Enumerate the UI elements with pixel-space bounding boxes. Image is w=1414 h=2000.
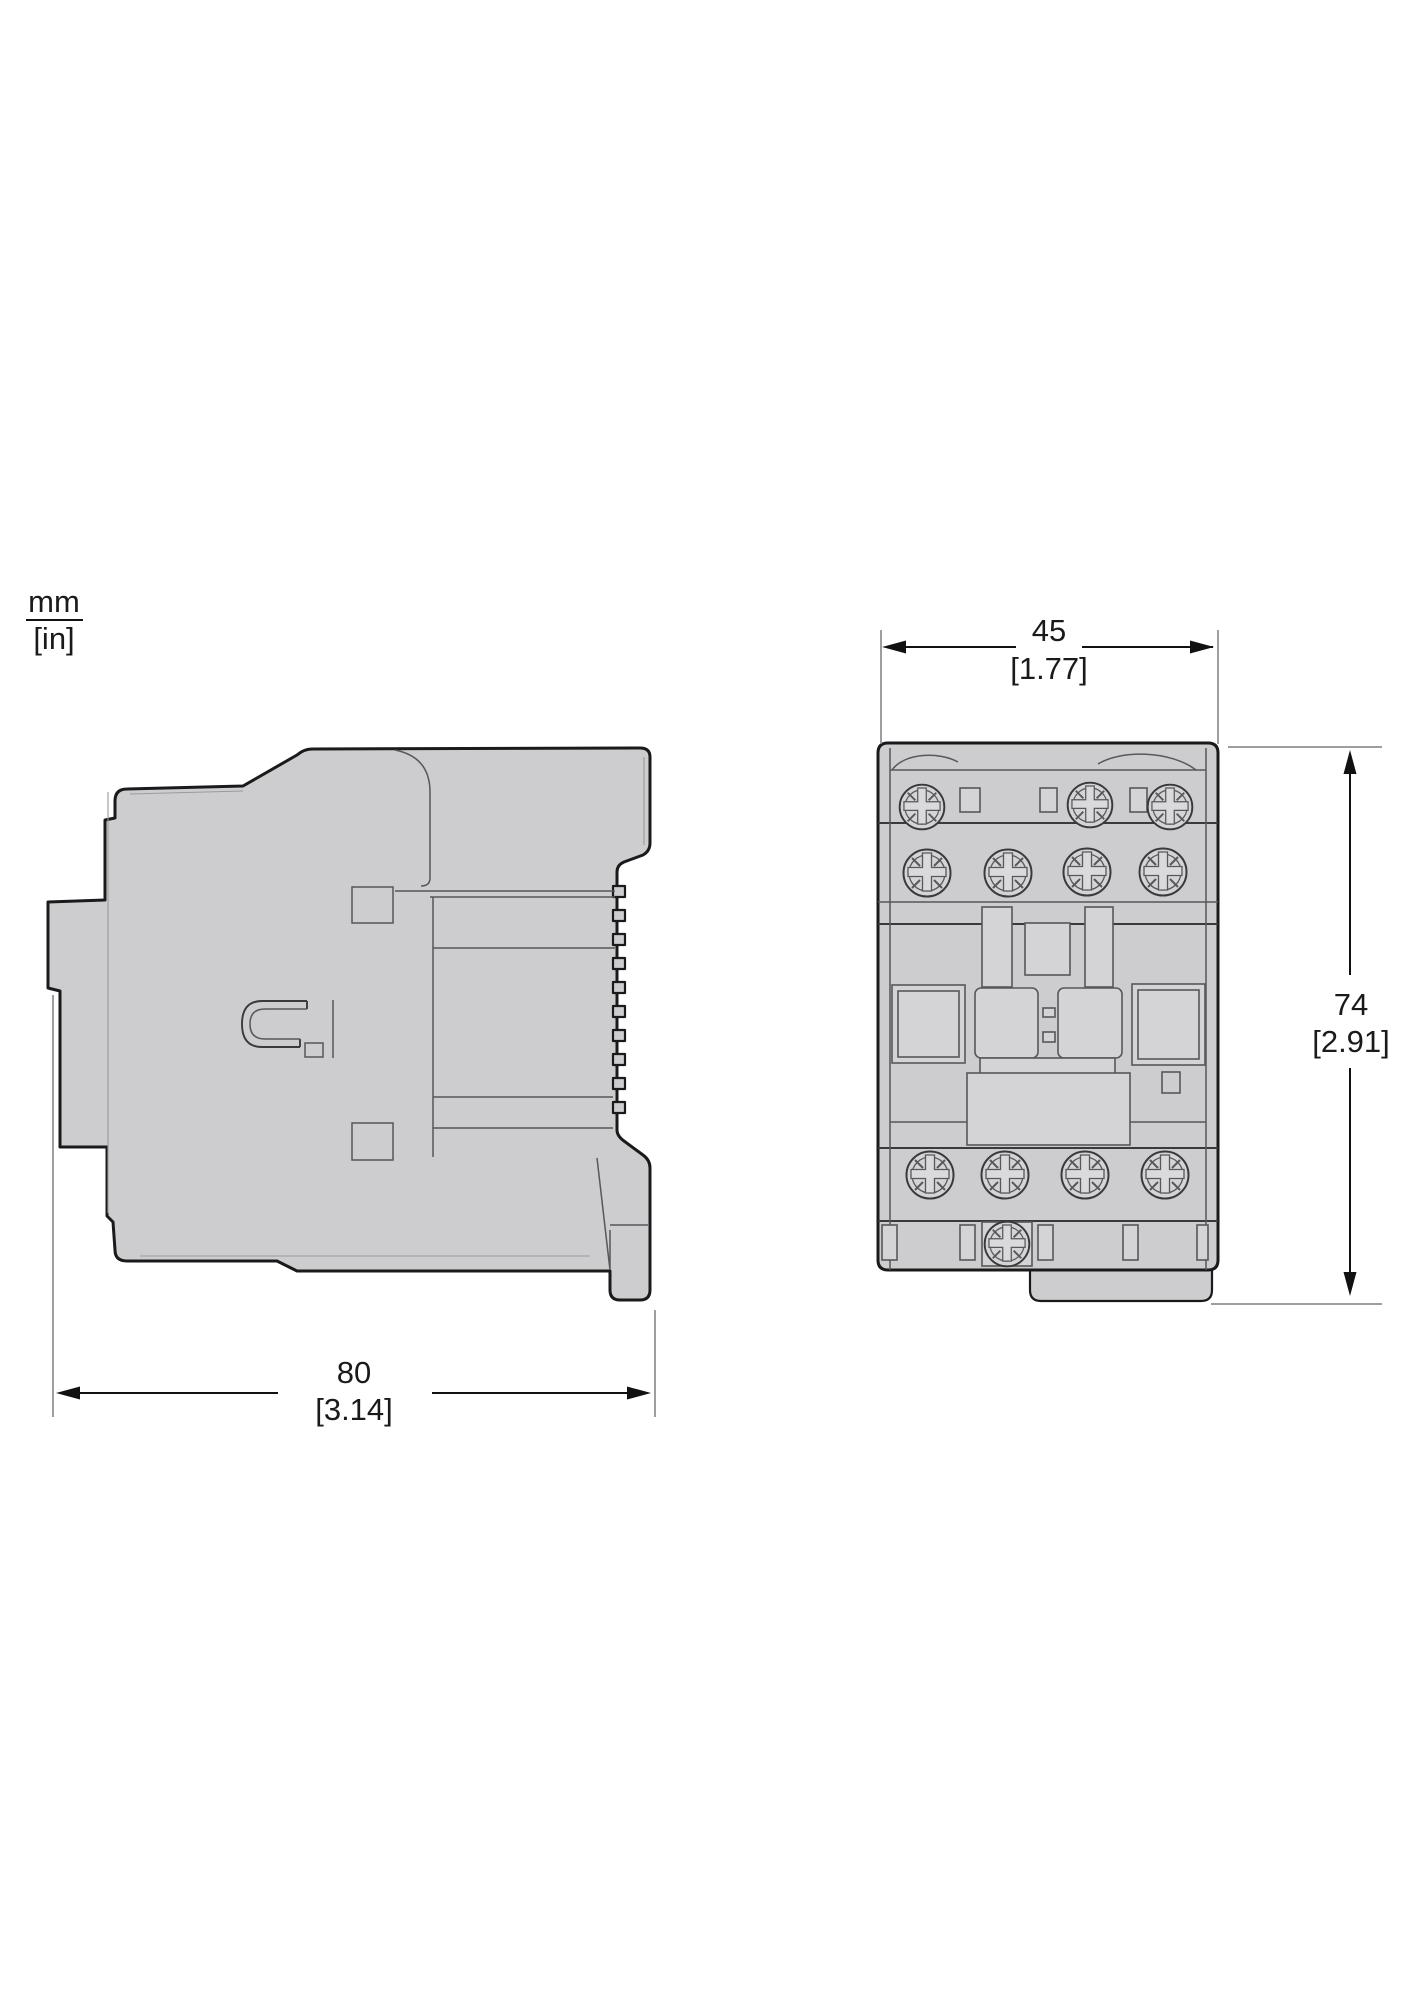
units-mm-label: mm: [28, 584, 80, 619]
screw-icon: [1142, 1152, 1189, 1199]
screw-icon: [904, 850, 951, 897]
arrowhead: [882, 641, 906, 654]
screw-icon: [1140, 849, 1187, 896]
screw-icon: [900, 785, 945, 830]
side-terminal-left: [892, 985, 965, 1063]
screw-icon: [907, 1152, 954, 1199]
screw-icon: [985, 1222, 1030, 1267]
dim-value-mm: 74: [1334, 987, 1368, 1022]
front-foot: [1030, 1270, 1212, 1301]
screw-icon: [1068, 783, 1113, 828]
screw-icon: [985, 850, 1032, 897]
contact-carrier-left: [975, 988, 1038, 1058]
accessory-post: [1085, 907, 1113, 987]
bottom-tab: [1197, 1225, 1208, 1260]
screw-icon: [1062, 1152, 1109, 1199]
dimension-front-height: 74 [2.91]: [1211, 747, 1390, 1304]
carrier-tab: [1043, 1008, 1055, 1017]
screw-icon: [982, 1152, 1029, 1199]
units-label: mm [in]: [26, 584, 83, 656]
side-view: [48, 748, 650, 1300]
carrier-tab: [1043, 1032, 1055, 1042]
bottom-tab: [960, 1225, 975, 1260]
bottom-tab: [1038, 1225, 1053, 1260]
top-tab: [1130, 788, 1147, 812]
dim-value-mm: 45: [1032, 613, 1066, 648]
bottom-tab: [1123, 1225, 1138, 1260]
units-in-label: [in]: [33, 621, 74, 656]
contact-carrier-right: [1058, 988, 1122, 1058]
bottom-tab: [882, 1225, 897, 1260]
side-view-outline: [48, 748, 650, 1300]
screw-icon: [1064, 849, 1111, 896]
top-tab: [1040, 788, 1057, 812]
dimension-front-width: 45 [1.77]: [881, 613, 1218, 744]
accessory-post: [982, 907, 1012, 987]
dim-value-in: [2.91]: [1312, 1024, 1390, 1059]
top-tab: [960, 788, 980, 812]
arrowhead: [627, 1387, 651, 1400]
arrowhead: [1344, 1272, 1357, 1296]
dim-value-mm: 80: [337, 1355, 371, 1390]
center-mount-square: [1025, 923, 1070, 975]
arrowhead: [1190, 641, 1214, 654]
arrowhead: [1344, 750, 1357, 774]
side-terminal-right: [1132, 984, 1205, 1065]
drawing-canvas: mm [in]: [0, 0, 1414, 2000]
dim-value-in: [1.77]: [1010, 651, 1088, 686]
dim-value-in: [3.14]: [315, 1392, 393, 1427]
front-view: [878, 743, 1218, 1301]
center-cover-plate: [967, 1073, 1130, 1145]
arrowhead: [56, 1387, 80, 1400]
dimension-drawing-page: mm [in]: [0, 0, 1414, 2000]
screw-icon: [1148, 785, 1193, 830]
